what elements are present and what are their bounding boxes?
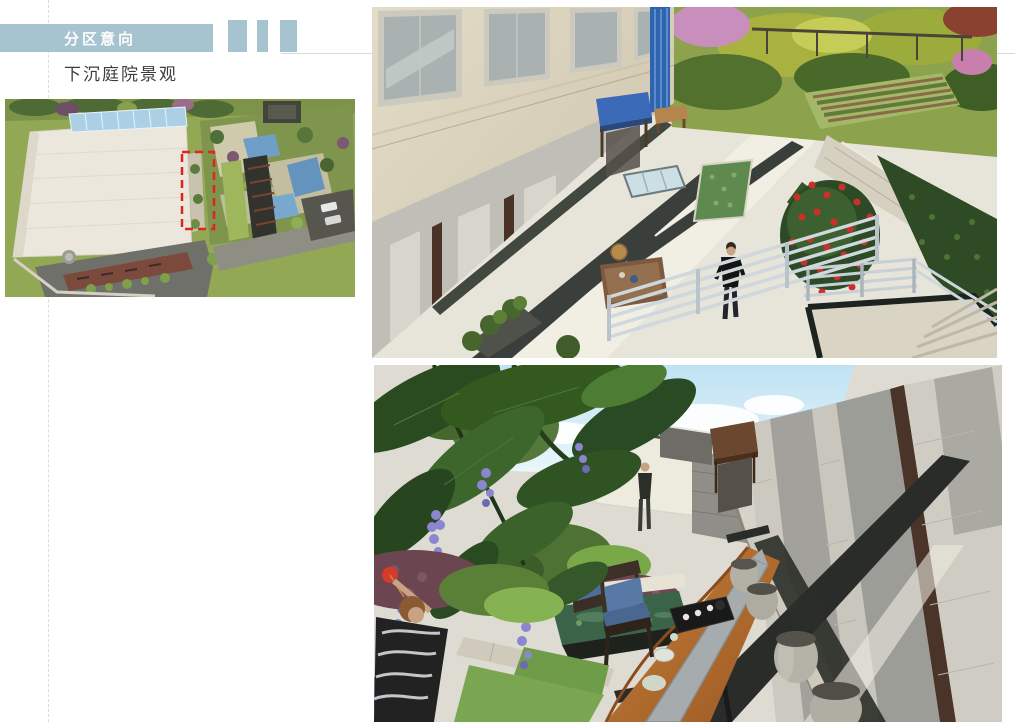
site-plan-thumbnail bbox=[5, 99, 355, 297]
courtyard-render-bottom-graphic bbox=[374, 365, 1002, 722]
courtyard-render-top bbox=[372, 7, 997, 358]
header-decor-block bbox=[280, 20, 297, 52]
header-decor-block bbox=[228, 20, 247, 52]
courtyard-render-bottom bbox=[374, 365, 1002, 722]
section-header-label: 分区意向 bbox=[0, 28, 136, 49]
header-decor-block bbox=[257, 20, 268, 52]
page-subtitle: 下沉庭院景观 bbox=[64, 60, 178, 85]
section-header-bar: 分区意向 bbox=[0, 24, 213, 52]
main-building-roof bbox=[13, 121, 192, 257]
slide: 分区意向 下沉庭院景观 bbox=[0, 0, 1015, 722]
courtyard-render-top-graphic bbox=[372, 7, 997, 358]
site-plan-graphic bbox=[5, 99, 355, 297]
stool bbox=[611, 244, 627, 260]
